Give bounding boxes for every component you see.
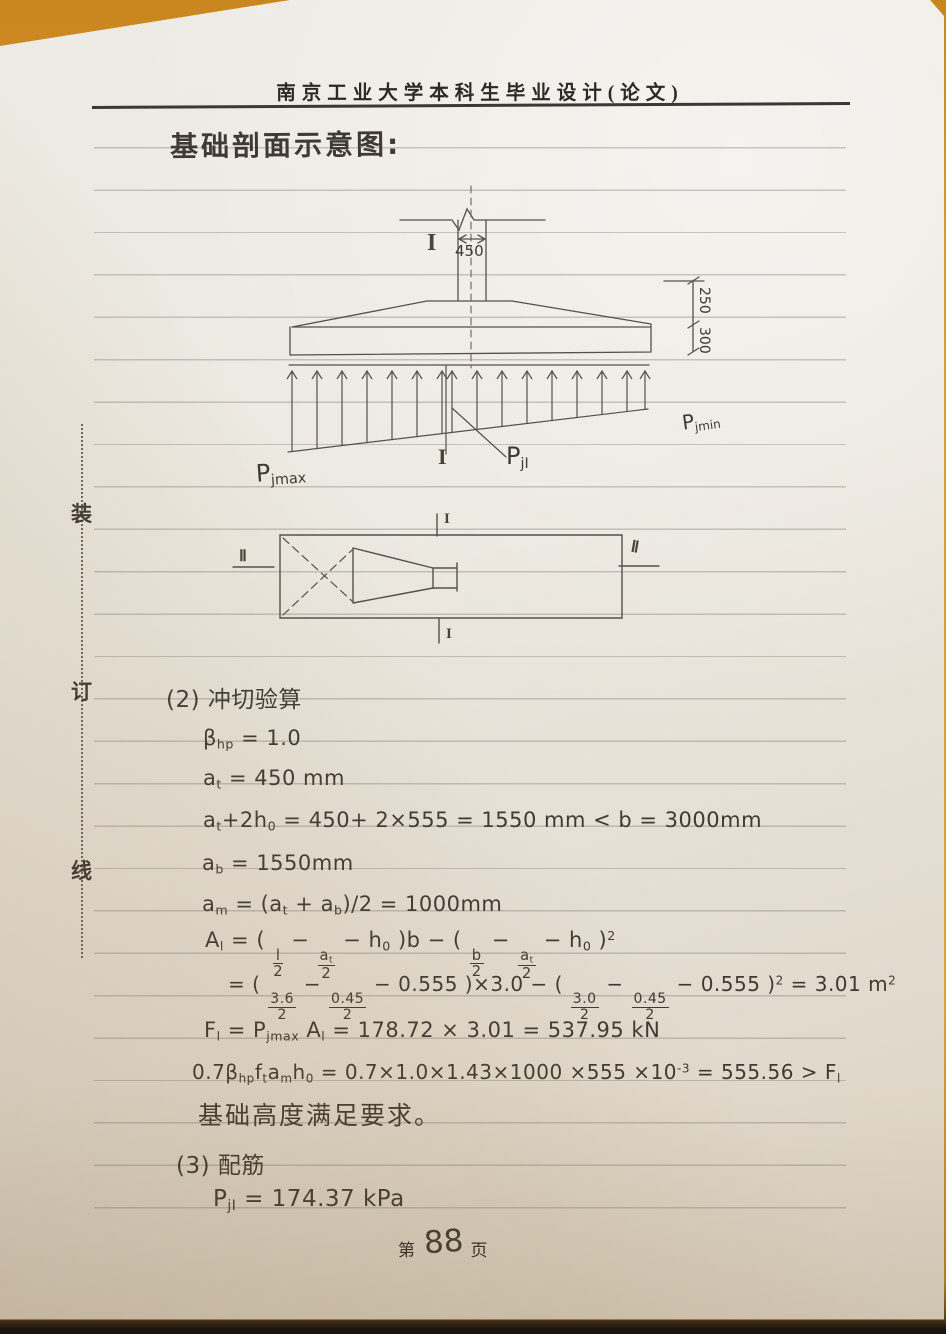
dim-label-250: 250 (696, 287, 712, 314)
plan-section-I-top: I (444, 511, 450, 528)
binding-char-zhuang: 装 (71, 498, 92, 528)
formula-Fl: Fl = Pjmax Al = 178.72 × 3.01 = 537.95 k… (204, 1018, 660, 1044)
plan-section-underlines (233, 566, 659, 567)
page-footer: 第 88 页 (398, 1224, 489, 1261)
binding-char-ding: 订 (71, 676, 92, 706)
conclusion-text: 基础高度满足要求。 (198, 1096, 441, 1132)
footer-suffix: 页 (470, 1224, 489, 1261)
footer-page-number: 88 (423, 1223, 465, 1262)
heading-punching-check: (2) 冲切验算 (166, 680, 302, 714)
plan-view (233, 514, 659, 643)
break-line (400, 209, 545, 230)
plan-column (433, 563, 457, 591)
pressure-min-label: Pjmin (680, 405, 721, 435)
footer-prefix: 第 (398, 1224, 417, 1261)
formula-punching-resistance: 0.7βhpftamh0 = 0.7×1.0×1.43×1000 ×555 ×1… (192, 1060, 841, 1085)
formula-am: am = (at + ab)/2 = 1000mm (202, 892, 502, 918)
foundation-diagrams (0, 0, 946, 1334)
page-section-title: 基础剖面示意图: (170, 123, 402, 165)
cross-section-view (290, 186, 704, 368)
header-title: 南京工业大学本科生毕业设计(论文) (250, 76, 710, 105)
table-edge-shadow (0, 1319, 946, 1334)
footing-outline (290, 301, 651, 355)
section-mark-I-pressure: I (438, 444, 447, 470)
plan-section-II-right: Ⅱ (629, 536, 640, 557)
plan-section-I-bottom: I (446, 626, 452, 643)
paper-sheet: 南京工业大学本科生毕业设计(论文) 基础剖面示意图: 装 订 线 (0, 0, 944, 1320)
pjI-leader-line (452, 408, 506, 457)
pressure-max-label: Pjmax (255, 456, 307, 489)
section-mark-I-column: I (427, 230, 436, 257)
formula-beta-hp: βhp = 1.0 (203, 726, 301, 752)
formula-pjI: PjI = 174.37 kPa (213, 1186, 405, 1214)
formula-at: at = 450 mm (203, 766, 345, 792)
plan-taper (353, 548, 433, 603)
plan-rectangle (280, 535, 622, 618)
pressure-mid-label: PjI (506, 442, 529, 472)
heading-rebar: (3) 配筋 (176, 1146, 265, 1180)
plan-dashed-diagonals (283, 538, 352, 615)
plan-section-II-left: Ⅱ (239, 546, 247, 566)
pressure-baseline (288, 409, 648, 452)
formula-ab: ab = 1550mm (202, 851, 354, 877)
pressure-distribution (288, 365, 649, 457)
photo-shadow-overlay (0, 0, 944, 1320)
formula-at-2h0: at+2h0 = 450+ 2×555 = 1550 mm < b = 3000… (203, 808, 762, 834)
plan-section-ticks (437, 514, 439, 643)
column-width-label: 450 (455, 242, 484, 260)
column-edges (458, 220, 486, 301)
binding-char-xian: 线 (71, 855, 92, 885)
dim-label-300: 300 (696, 327, 712, 354)
ruled-lines (94, 106, 846, 1218)
formula-Al-numeric: = ( 3.62 − 0.452 − 0.555 )×3.0 − ( 3.02 … (228, 972, 896, 1022)
